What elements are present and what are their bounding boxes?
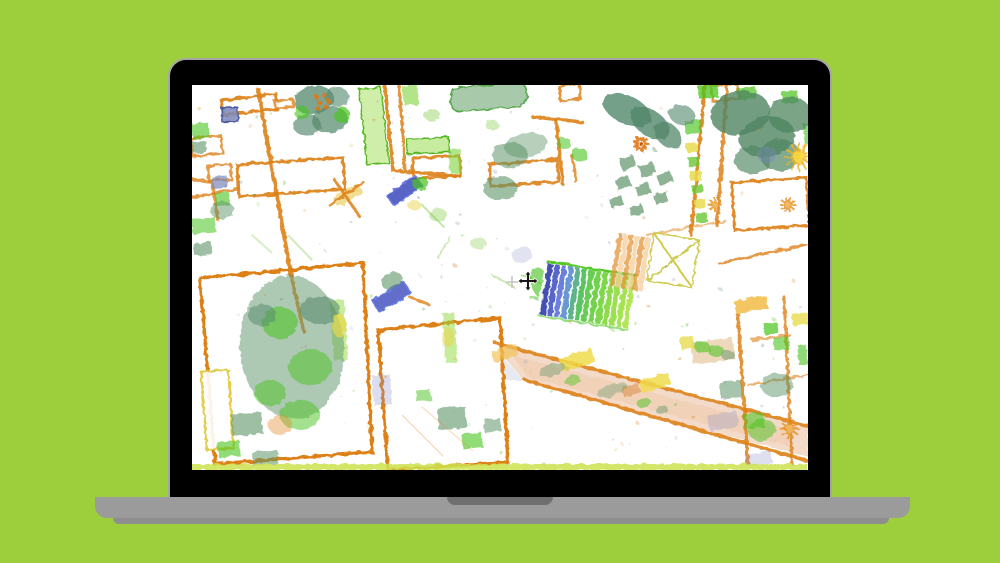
pointcloud-map-canvas[interactable] xyxy=(192,85,808,470)
laptop-screen xyxy=(192,85,808,470)
laptop-base-notch xyxy=(447,497,553,505)
laptop-base-shadow xyxy=(113,518,889,524)
scene-background xyxy=(0,0,1000,563)
